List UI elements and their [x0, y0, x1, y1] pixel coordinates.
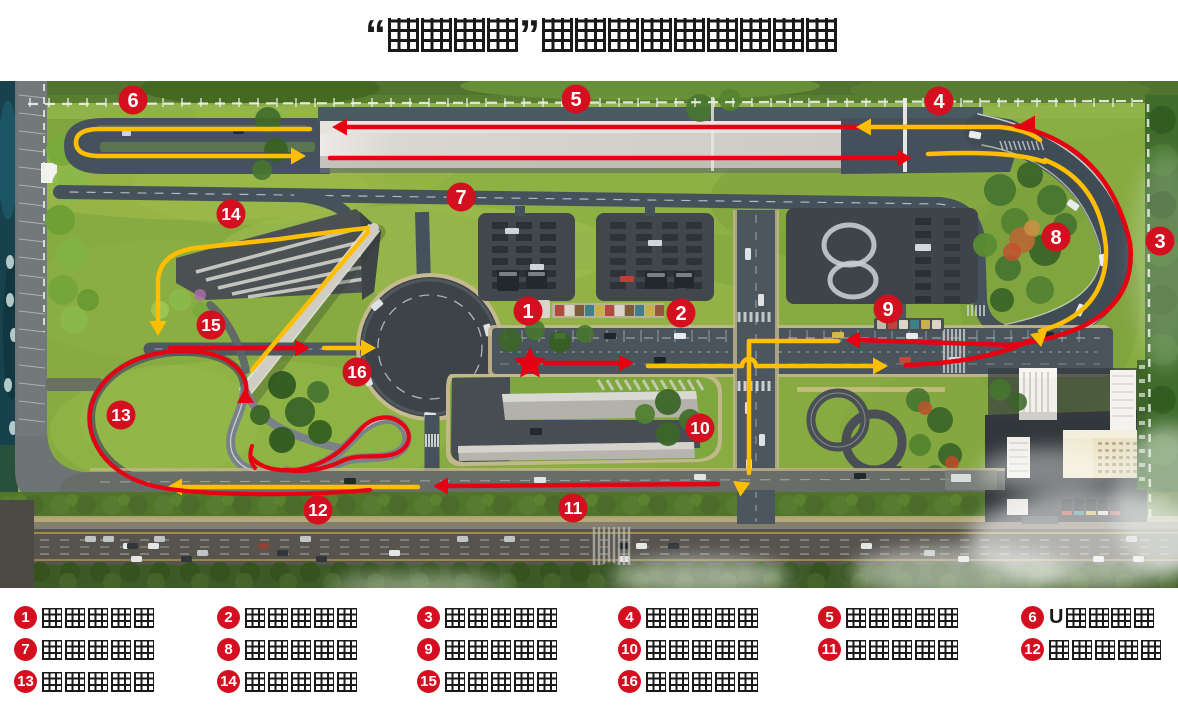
- svg-text:13: 13: [111, 405, 131, 425]
- svg-text:16: 16: [347, 362, 367, 382]
- svg-text:12: 12: [308, 500, 328, 520]
- svg-text:5: 5: [570, 89, 581, 111]
- svg-text:15: 15: [201, 315, 221, 335]
- svg-text:4: 4: [933, 91, 945, 113]
- svg-text:1: 1: [522, 301, 533, 323]
- svg-text:10: 10: [690, 418, 710, 438]
- svg-text:3: 3: [1154, 231, 1165, 253]
- svg-text:2: 2: [675, 303, 686, 325]
- svg-text:11: 11: [564, 498, 583, 518]
- svg-text:7: 7: [455, 187, 466, 209]
- svg-text:6: 6: [127, 90, 138, 112]
- svg-text:14: 14: [221, 204, 241, 224]
- svg-text:9: 9: [882, 299, 893, 321]
- svg-text:8: 8: [1050, 227, 1061, 249]
